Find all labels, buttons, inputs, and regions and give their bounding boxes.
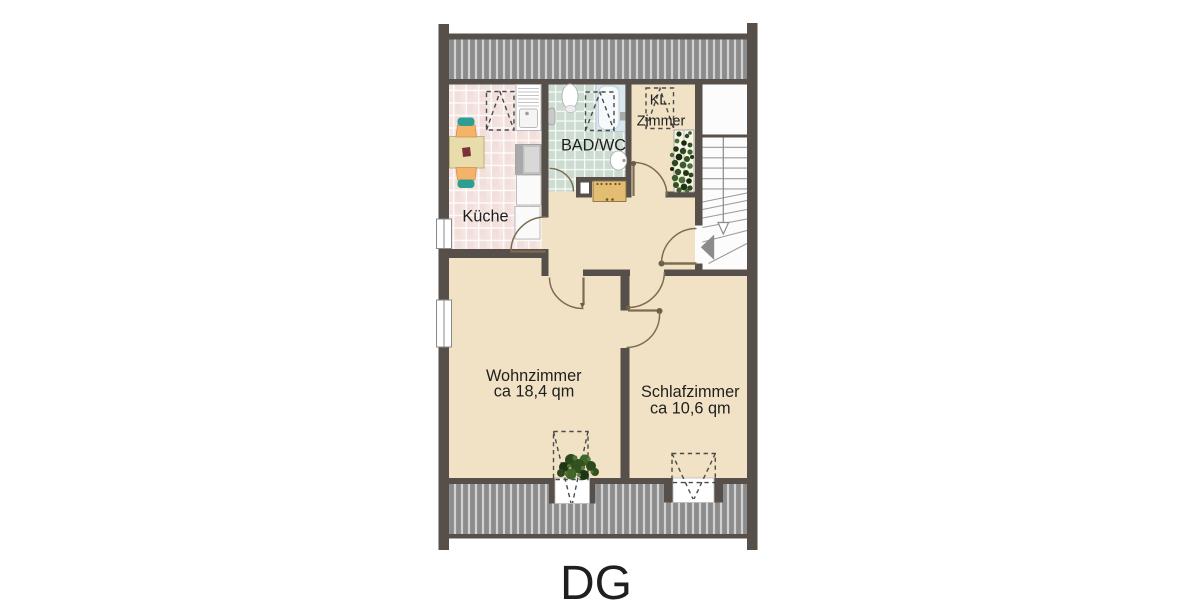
svg-text:ca 18,4 qm: ca 18,4 qm <box>494 383 575 401</box>
svg-text:Zimmer: Zimmer <box>637 114 686 130</box>
svg-text:BAD/WC: BAD/WC <box>561 137 626 155</box>
svg-text:Schlafzimmer: Schlafzimmer <box>641 383 740 401</box>
svg-text:Küche: Küche <box>462 208 508 226</box>
svg-text:KL.: KL. <box>650 93 671 109</box>
svg-text:ca 10,6 qm: ca 10,6 qm <box>650 400 731 418</box>
svg-text:DG: DG <box>560 557 632 600</box>
